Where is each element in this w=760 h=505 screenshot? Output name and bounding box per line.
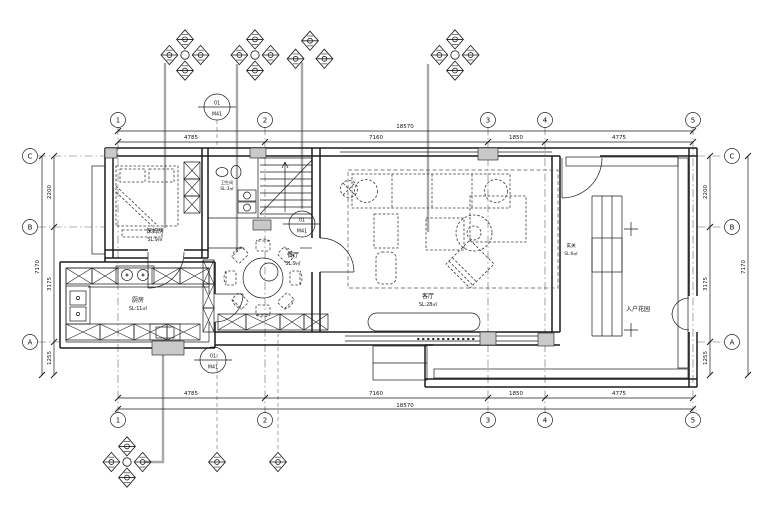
kitchen-cabinet [167,324,200,340]
svg-text:M41: M41 [297,229,307,235]
dimensions-left: 7170 2200 3175 1255 [35,153,57,378]
round-table [456,215,492,251]
elevation-marker-cluster [287,31,333,68]
entry-door-swing [562,158,602,198]
dim-left-seg2: 3175 [47,277,53,291]
garden-border-top [566,157,678,166]
dim-left-seg1: 2200 [47,185,53,199]
bedroom-door-swing [148,252,184,288]
dim-overall-top: 18570 [396,124,414,130]
grid-bubble-A-left: A [28,339,33,347]
grid-bubble-B-left: B [28,224,33,232]
dining-chair [277,292,295,310]
dimensions-bottom: 4785 7160 1850 4775 18570 [115,391,696,412]
dim-overall-bottom: 18570 [396,403,414,409]
bay-window [92,166,105,254]
dim-right-seg2: 3175 [703,277,709,291]
garden-border-right [678,158,688,368]
floor-plan-drawing: 18570 4785 7160 1850 4775 4785 7160 1850… [0,0,760,505]
door-tag: 01 M41 [283,211,321,237]
door-tag: 01 M41 [194,347,232,373]
svg-text:M41: M41 [212,112,222,118]
room-area-living: SL:28㎡ [419,301,437,308]
blanket-fold [116,186,158,226]
grid-bubble-2-bottom: 2 [263,417,267,425]
floor-plan-canvas: 18570 4785 7160 1850 4775 4785 7160 1850… [0,0,760,505]
grid-bubble-4-bottom: 4 [543,417,548,425]
kitchen-cabinet [180,268,209,284]
garden-door-swing-lower [672,313,689,330]
ceiling-outline [348,170,558,288]
kitchen-cabinet [100,324,134,340]
dryer [238,202,256,213]
lazy-susan [260,263,278,281]
kitchen-cabinet [134,324,167,340]
dim-left-seg3: 1255 [47,351,53,365]
dim-top-seg4: 4775 [612,135,626,141]
grid-bubble-A-right: A [730,339,735,347]
grid-bubble-4-top: 4 [543,117,548,125]
elevation-marker-cluster [103,437,151,487]
foyer [592,196,638,337]
grid-bubble-5-top: 5 [691,117,695,125]
wardrobe [184,162,200,179]
dining-table [243,258,283,298]
elevation-marker-cluster [161,30,209,80]
pillow [120,169,145,182]
room-label-kitchen: 厨房 [132,296,144,304]
pantry-cabinets [203,260,214,332]
room-label-living: 客厅 [422,292,434,300]
washer [238,190,256,201]
kitchen-cabinet [66,324,100,340]
sofa [352,174,510,208]
room-label-bath: 卫生间 [221,179,234,186]
dim-top-seg1: 4785 [184,135,198,141]
grid-bubble-C-right: C [730,153,735,161]
dim-top-seg2: 7160 [369,135,383,141]
grid-bubble-1-bottom: 1 [116,417,120,425]
garden-border-bottom [434,369,688,378]
dim-overall-right: 7170 [741,260,747,274]
dim-bottom-seg1: 4785 [184,391,198,397]
bedroom [116,162,200,237]
dim-bottom-seg4: 4775 [612,391,626,397]
grid-bubble-1-top: 1 [116,117,120,125]
stair-break-line [260,160,312,214]
room-label-maid: 保姆房 [146,227,164,235]
room-label-dining: 餐厅 [287,251,299,259]
sideboard [246,314,280,330]
window-seat [368,313,480,331]
dim-bottom-seg2: 7160 [369,391,383,397]
room-area-maid: SL:9㎡ [147,236,162,243]
grid-bubble-C-left: C [28,153,33,161]
bed [116,166,178,226]
dining-chair [224,271,236,285]
dim-bottom-seg3: 1850 [509,391,523,397]
living-door-swing [320,238,354,272]
dimensions-right: 2200 3175 1255 7170 [703,153,751,378]
living-room [341,170,559,339]
sideboard [304,314,328,330]
kitchen-cabinet [152,268,180,284]
sink [216,168,228,177]
elevation-marker-cluster [431,30,479,80]
garden-door-swing-upper [672,298,689,315]
elevation-marker [270,452,287,471]
elevation-marker [209,452,226,471]
dining-chair [290,271,302,285]
svg-text:01: 01 [214,101,220,107]
pillow [149,169,174,182]
dining-chair [256,305,270,317]
grid-bubble-2-top: 2 [263,117,267,125]
svg-text:M41: M41 [208,365,218,371]
dim-right-seg3: 1255 [703,351,709,365]
grid-bubble-5-bottom: 5 [691,417,695,425]
dim-overall-left: 7170 [35,260,41,274]
sink-bowl [70,307,86,321]
stone-feature [592,238,622,272]
sink-bowl [70,291,86,305]
feature-screen [592,196,622,336]
side-table [374,214,398,248]
room-area-kitchen: SL:11㎡ [129,305,147,312]
grid-bubble-3-bottom: 3 [486,417,490,425]
room-area-foyer: SL:6㎡ [564,250,578,256]
oven [150,324,180,340]
kitchen-cabinet [92,268,118,284]
room-area-dining: SL:9㎡ [285,260,300,267]
svg-text:01: 01 [210,354,216,360]
coffee-table [426,218,464,250]
sideboard [280,314,304,330]
rug [470,196,526,242]
room-label-foyer: 玄关 [566,242,576,249]
dining-chair [256,239,270,251]
chaise [446,240,494,288]
dimensions-top: 18570 4785 7160 1850 4775 [115,124,696,145]
level-marks [624,222,638,337]
armchair [355,180,378,203]
kitchen-step [152,341,184,355]
svg-text:01: 01 [299,218,305,224]
dim-top-seg3: 1850 [509,135,523,141]
room-label-garden: 入户花园 [626,305,650,313]
wardrobe [184,196,200,213]
wardrobe [184,179,200,196]
door-tag: 01 M41 [198,94,236,120]
entry-garden-steps [373,346,427,380]
kitchen-cabinet [66,268,92,284]
grid-bubble-B-right: B [730,224,735,232]
lounge-chair [376,252,396,284]
dim-right-seg1: 2200 [703,185,709,199]
room-area-bath: SL:3㎡ [220,185,234,191]
staircase [260,158,312,214]
grid-bubble-3-top: 3 [486,117,490,125]
